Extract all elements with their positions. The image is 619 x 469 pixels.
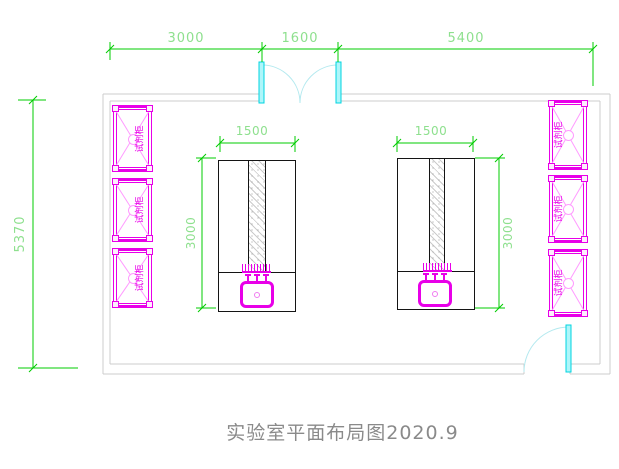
reagent-cabinet: 试剂柜 <box>549 249 587 317</box>
door-swing-arc <box>262 65 300 103</box>
dim-label-bench2-width: 1500 <box>401 124 461 138</box>
dim-ext-bench1-depth <box>196 158 216 308</box>
dim-label-top-3: 5400 <box>430 32 502 46</box>
cabinet-corner <box>146 178 153 185</box>
reagent-cabinet: 试剂柜 <box>113 105 152 172</box>
cad-floor-plan: 3000 1600 5400 5370 1500 3000 1500 3000 … <box>0 0 619 469</box>
cabinet-corner <box>112 105 119 112</box>
sink-symbol <box>418 280 452 307</box>
door-swing-arc <box>524 327 569 372</box>
cabinet-corner <box>548 163 555 170</box>
cabinet-corner <box>548 175 555 182</box>
door-leaf <box>259 62 264 103</box>
sink-prong <box>265 274 267 281</box>
bench-reagent-shelf <box>429 159 445 271</box>
cabinet-corner <box>581 310 588 317</box>
lab-bench <box>218 160 296 312</box>
dim-ext-bench2-width <box>397 136 473 152</box>
lab-bench <box>397 158 475 310</box>
dim-label-bench2-depth: 3000 <box>501 203 515 263</box>
cabinet-corner <box>581 163 588 170</box>
cabinet-knob-icon <box>563 278 574 289</box>
cabinet-corner <box>112 301 119 308</box>
cabinet-corner <box>581 236 588 243</box>
cabinet-label: 试剂柜 <box>556 269 565 296</box>
dim-ext-bench1-width <box>220 136 295 152</box>
bench-reagent-shelf <box>248 161 266 272</box>
reagent-cabinet: 试剂柜 <box>549 100 587 170</box>
dim-label-bench1-depth: 3000 <box>184 203 198 263</box>
cabinet-label: 试剂柜 <box>556 195 565 222</box>
cabinet-corner <box>581 249 588 256</box>
sink-symbol <box>240 281 274 308</box>
sink-prong <box>443 273 445 280</box>
dim-label-top-2: 1600 <box>270 32 330 46</box>
linework-layer <box>0 0 619 469</box>
cabinet-label: 试剂柜 <box>136 196 145 223</box>
cabinet-corner <box>112 235 119 242</box>
cabinet-corner <box>581 175 588 182</box>
cabinet-label: 试剂柜 <box>556 121 565 148</box>
cabinet-corner <box>146 105 153 112</box>
cabinet-corner <box>112 248 119 255</box>
dim-label-overall-depth: 5370 <box>14 204 28 264</box>
door-leaf <box>566 325 571 372</box>
reagent-cabinet: 试剂柜 <box>113 178 152 242</box>
cabinet-label: 试剂柜 <box>136 264 145 291</box>
cabinet-corner <box>146 301 153 308</box>
reagent-cabinet: 试剂柜 <box>113 248 152 308</box>
drain-icon <box>254 292 260 298</box>
bench-hatch-strip <box>423 263 452 272</box>
sink-prong <box>425 273 427 280</box>
cabinet-corner <box>581 100 588 107</box>
cabinet-corner <box>112 165 119 172</box>
sink-prong <box>256 274 258 281</box>
cabinet-corner <box>112 178 119 185</box>
cabinet-corner <box>548 100 555 107</box>
cabinet-corner <box>146 165 153 172</box>
bench-hatch-strip <box>242 264 271 273</box>
drain-icon <box>432 291 438 297</box>
cabinet-corner <box>548 310 555 317</box>
cabinet-corner <box>146 235 153 242</box>
sink-prong <box>434 273 436 280</box>
cabinet-label: 试剂柜 <box>136 125 145 152</box>
door-leaf <box>336 62 341 103</box>
door-swing-arc <box>300 65 338 103</box>
cabinet-knob-icon <box>563 204 574 215</box>
cabinet-corner <box>146 248 153 255</box>
room-walls <box>103 94 610 374</box>
sink-prong <box>247 274 249 281</box>
cabinet-corner <box>548 236 555 243</box>
cabinet-knob-icon <box>563 130 574 141</box>
dim-label-bench1-width: 1500 <box>222 124 282 138</box>
cabinet-corner <box>548 249 555 256</box>
dim-label-top-1: 3000 <box>150 32 222 46</box>
drawing-title: 实验室平面布局图2020.9 <box>225 418 460 445</box>
reagent-cabinet: 试剂柜 <box>549 175 587 243</box>
